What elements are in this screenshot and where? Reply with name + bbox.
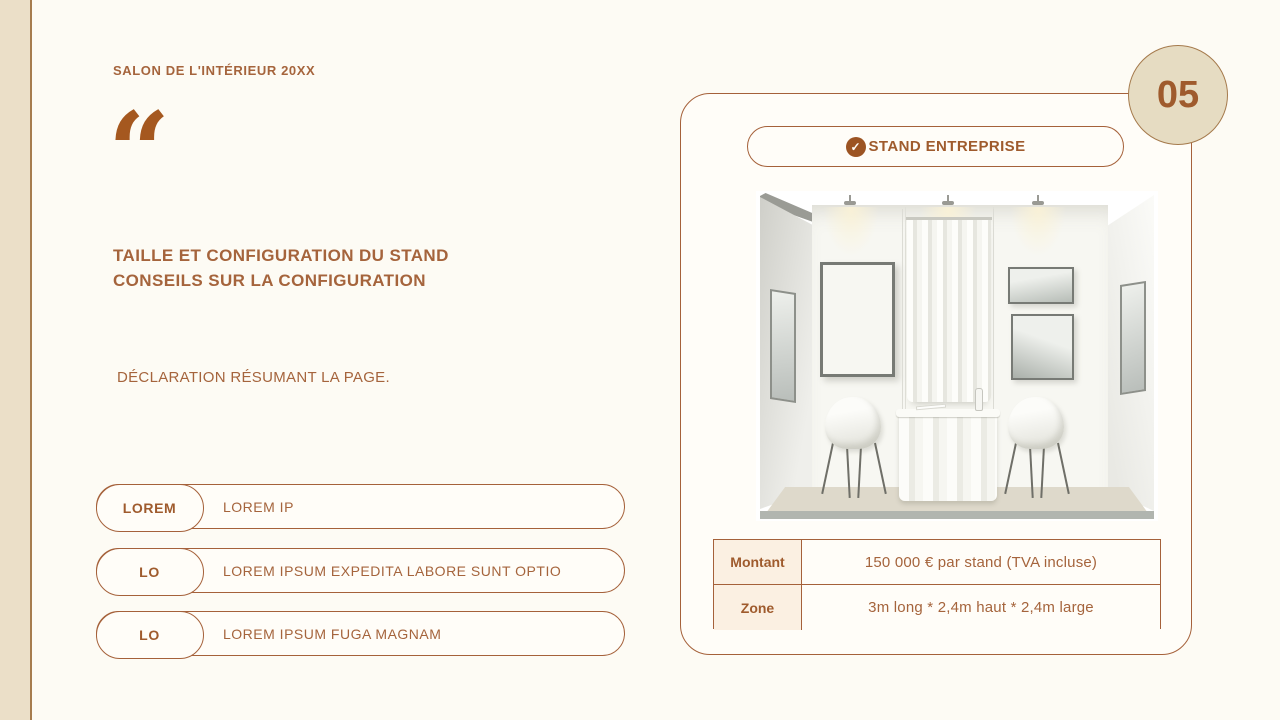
stand-title-pill[interactable]: ✓ STAND ENTREPRISE [747,126,1124,167]
artwork-landscape [1008,267,1074,304]
spec-table: Montant 150 000 € par stand (TVA incluse… [713,539,1161,629]
bottle [975,388,983,411]
page-number-badge: 05 [1128,45,1228,145]
page-title-line1: TAILLE ET CONFIGURATION DU STAND [113,243,449,268]
chair-left [825,397,881,449]
list-item-badge: LO [96,611,204,659]
table-top [896,409,1000,417]
check-circle-icon: ✓ [846,137,866,157]
chair-right [1008,397,1064,449]
list-item-label: LOREM IP [223,499,294,515]
slide: SALON DE L'INTÉRIEUR 20XX “ TAILLE ET CO… [0,0,1280,720]
spec-value-zone: 3m long * 2,4m haut * 2,4m large [802,585,1160,630]
spec-label-zone: Zone [714,585,802,630]
list-item-badge: LOREM [96,484,204,532]
curtain [907,220,991,402]
left-accent-bar [0,0,32,720]
spec-label-montant: Montant [714,540,802,585]
side-artwork-right [1120,281,1146,395]
page-subtitle: DÉCLARATION RÉSUMANT LA PAGE. [117,369,390,386]
spotlight-icon [1032,201,1044,205]
spec-value-montant: 150 000 € par stand (TVA incluse) [802,540,1160,585]
list-item-label: LOREM IPSUM FUGA MAGNAM [223,626,441,642]
artwork-square [1011,314,1074,380]
stand-card: ✓ STAND ENTREPRISE [680,93,1192,655]
list-item-label: LOREM IPSUM EXPEDITA LABORE SUNT OPTIO [223,563,561,579]
brand-title: SALON DE L'INTÉRIEUR 20XX [113,63,315,78]
table-cloth [899,413,997,501]
spotlight-icon [844,201,856,205]
spotlight-icon [942,201,954,205]
stand-photo [756,191,1158,521]
booth-floor-edge [760,511,1154,519]
page-title: TAILLE ET CONFIGURATION DU STAND CONSEIL… [113,243,449,293]
stand-title-label: STAND ENTREPRISE [869,138,1026,155]
artwork-large [820,262,895,377]
list-item[interactable]: LO LOREM IPSUM FUGA MAGNAM [96,611,625,656]
quote-icon: “ [108,98,170,178]
list-item[interactable]: LOREM LOREM IP [96,484,625,529]
page-title-line2: CONSEILS SUR LA CONFIGURATION [113,268,449,293]
side-artwork-left [770,289,796,403]
list-item-badge: LO [96,548,204,596]
list-item[interactable]: LO LOREM IPSUM EXPEDITA LABORE SUNT OPTI… [96,548,625,593]
